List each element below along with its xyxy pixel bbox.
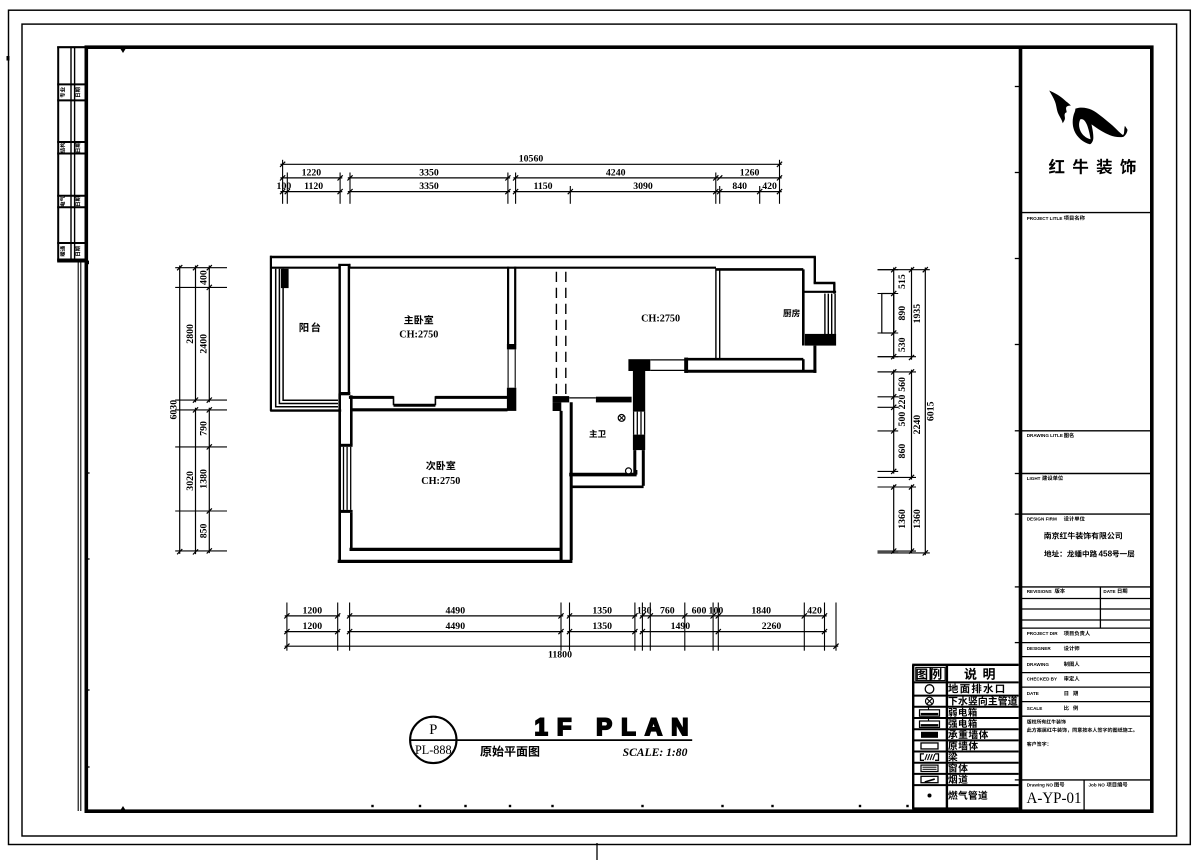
svg-text:130: 130 [637, 605, 652, 616]
svg-text:DESIGN FIRM: DESIGN FIRM [1027, 517, 1057, 522]
svg-text:860: 860 [897, 444, 908, 459]
svg-text:600: 600 [692, 605, 707, 616]
svg-text:560: 560 [897, 377, 908, 392]
svg-text:1200: 1200 [303, 621, 323, 632]
svg-text:1220: 1220 [302, 167, 322, 178]
svg-text:2800: 2800 [185, 324, 196, 344]
svg-text:CHECKED BY: CHECKED BY [1027, 677, 1057, 682]
svg-text:500: 500 [897, 412, 908, 427]
svg-text:SCALE: SCALE [1027, 706, 1043, 711]
svg-text:3090: 3090 [633, 181, 653, 192]
svg-text:2400: 2400 [199, 334, 210, 354]
svg-text:REVISIONS: REVISIONS [1027, 589, 1052, 594]
svg-text:CH:2750: CH:2750 [421, 476, 460, 487]
svg-text:CH:2750: CH:2750 [399, 329, 438, 340]
svg-text:100: 100 [709, 605, 724, 616]
svg-text:890: 890 [897, 306, 908, 321]
svg-text:DATE: DATE [1103, 589, 1115, 594]
svg-text:3020: 3020 [185, 471, 196, 491]
svg-text:LIGHT: LIGHT [1027, 476, 1041, 481]
svg-text:1380: 1380 [199, 469, 210, 489]
svg-text:790: 790 [199, 421, 210, 436]
svg-text:DRAWING: DRAWING [1027, 662, 1050, 667]
svg-text:Drawing NO: Drawing NO [1027, 783, 1054, 788]
svg-text:1935: 1935 [912, 304, 923, 324]
svg-text:420: 420 [762, 181, 777, 192]
svg-text:1150: 1150 [533, 181, 552, 192]
svg-text:1360: 1360 [912, 509, 923, 529]
svg-text:3350: 3350 [419, 181, 439, 192]
svg-text:1360: 1360 [897, 509, 908, 529]
svg-text:458: 458 [1099, 550, 1113, 559]
svg-text:DRAWING LITLE: DRAWING LITLE [1027, 433, 1063, 438]
svg-text:760: 760 [660, 605, 675, 616]
svg-text:420: 420 [807, 605, 822, 616]
svg-text:CH:2750: CH:2750 [641, 313, 680, 324]
svg-text:DATE: DATE [1027, 691, 1039, 696]
svg-text:100: 100 [277, 181, 292, 192]
svg-text:P: P [429, 722, 437, 738]
svg-text:PROJECT LITLE: PROJECT LITLE [1027, 216, 1063, 221]
svg-text:1120: 1120 [304, 181, 323, 192]
svg-text:2240: 2240 [912, 415, 923, 435]
svg-text:Job NO: Job NO [1089, 783, 1106, 788]
svg-text:DESIGNER: DESIGNER [1027, 646, 1052, 651]
svg-text:4490: 4490 [446, 605, 466, 616]
svg-text:1260: 1260 [740, 167, 760, 178]
svg-text:400: 400 [199, 270, 210, 285]
svg-text:1840: 1840 [751, 605, 771, 616]
svg-text:1350: 1350 [592, 605, 612, 616]
svg-text:220: 220 [897, 395, 908, 410]
svg-text:4490: 4490 [446, 621, 466, 632]
svg-text:PROJECT DIR: PROJECT DIR [1027, 631, 1059, 636]
svg-text:3350: 3350 [419, 167, 439, 178]
svg-text:1350: 1350 [592, 621, 612, 632]
svg-text:4240: 4240 [606, 167, 626, 178]
svg-text:10560: 10560 [519, 154, 544, 165]
svg-text:530: 530 [897, 337, 908, 352]
svg-text:1200: 1200 [303, 605, 323, 616]
svg-text:6015: 6015 [925, 401, 936, 421]
svg-text:SCALE: 1:80: SCALE: 1:80 [623, 746, 688, 759]
svg-text:840: 840 [732, 181, 747, 192]
svg-text:6030: 6030 [169, 400, 180, 420]
svg-text:2260: 2260 [762, 621, 782, 632]
svg-text:515: 515 [897, 274, 908, 289]
svg-text:PL-888: PL-888 [415, 743, 452, 757]
svg-text:11800: 11800 [548, 649, 572, 660]
svg-text:1F PLAN: 1F PLAN [534, 714, 697, 741]
svg-text:850: 850 [199, 523, 210, 538]
svg-text:1490: 1490 [671, 621, 691, 632]
svg-text:A-YP-01: A-YP-01 [1027, 789, 1082, 807]
